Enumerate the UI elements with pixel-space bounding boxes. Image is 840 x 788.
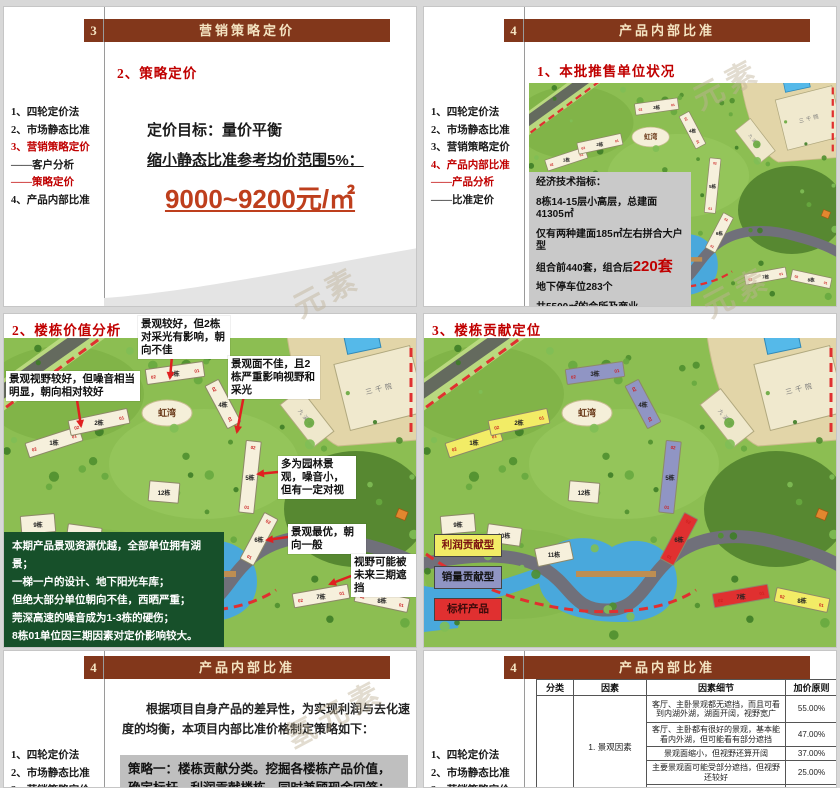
map-legend-item: 标杆产品 [434,598,502,621]
table-header-cell: 分类 [537,680,574,696]
svg-text:虹湾: 虹湾 [158,407,176,418]
svg-text:4栋: 4栋 [218,401,227,409]
summary-line: 莞深高速的噪音成为1-3栋的硬伤； [12,609,216,627]
map-callout-note: 景观最优，朝向一般 [288,524,366,554]
svg-text:01: 01 [671,103,675,108]
agenda-nav-item: ——策略定价 [11,174,103,192]
agenda-nav-list: 1、四轮定价法2、市场静态比准3、营销策略定价 [11,747,103,788]
slide-thumbnail-marketing-strategy-pricing[interactable]: 3 营销策略定价 1、四轮定价法2、市场静态比准3、营销策略定价——客户分析——… [3,6,417,307]
svg-text:8栋: 8栋 [797,597,806,605]
agenda-nav-item: 3、营销策略定价 [11,139,103,157]
svg-text:1栋: 1栋 [563,156,570,163]
svg-text:12栋: 12栋 [158,489,171,497]
agenda-nav-item: 1、四轮定价法 [11,747,103,765]
summary-line: 本期产品景观资源优越，全部单位拥有湖景； [12,537,216,573]
summary-green-box: 本期产品景观资源优越，全部单位拥有湖景；一梯一户的设计、地下阳光车库；但绝大部分… [4,532,224,648]
svg-text:2栋: 2栋 [94,419,103,427]
highlight-unit-count: 220套 [633,258,673,275]
agenda-nav-item: 1、四轮定价法 [11,104,103,122]
map-callout-note: 景观视野较好，但噪音相当明显，朝向相对较好 [6,371,140,401]
map-slide-title: 3、楼栋贡献定位 [432,319,541,339]
table-header-cell: 因素细节 [647,680,786,696]
infobox-line: 仅有两种建面185㎡左右拼合大户型 [536,229,684,254]
map-slide-title: 2、楼栋价值分析 [12,319,121,339]
agenda-nav-item: 1、四轮定价法 [431,104,523,122]
technical-indicators-infobox: 经济技术指标：8栋14-15层小高层，总建面41305㎡仅有两种建面185㎡左右… [529,172,691,306]
table-detail-cell: 客厅、主卧景观都无遮挡，而且可看到内湖外湖，湖面开阔，视野宽广 [647,696,786,723]
svg-text:7栋: 7栋 [316,593,325,601]
map-legend-item: 销量贡献型 [434,566,502,589]
agenda-nav-item: ——比准定价 [431,192,523,210]
svg-text:3栋: 3栋 [590,370,599,378]
svg-text:虹湾: 虹湾 [644,132,658,141]
svg-text:4栋: 4栋 [638,401,647,409]
map-callout-note: 景观面不佳，且2栋严重影响视野和采光 [228,356,320,399]
table-markup-cell: 25.00% [786,761,838,785]
table-category-cell [537,696,574,788]
agenda-nav-list: 1、四轮定价法2、市场静态比准3、营销策略定价 [431,747,523,788]
slide-header-title: 产品内部比准 [104,656,390,679]
slide-thumbnail-units-for-sale[interactable]: 4 产品内部比准 1、四轮定价法2、市场静态比准3、营销策略定价4、产品内部比准… [423,6,837,307]
svg-text:7栋: 7栋 [762,273,769,280]
svg-text:5栋: 5栋 [665,474,674,482]
svg-text:02: 02 [638,107,642,112]
svg-text:6栋: 6栋 [674,536,683,544]
slide-header-bar: 3 营销策略定价 [84,19,390,42]
slide-header-bar: 4 产品内部比准 [504,19,810,42]
table-markup-cell: 47.00% [786,723,838,747]
agenda-nav-item: 4、产品内部比准 [11,192,103,210]
agenda-nav-item: ——客户分析 [11,157,103,175]
svg-text:11栋: 11栋 [548,551,560,559]
pricing-factor-table: 分类因素因素细节加价原则1. 景观因素客厅、主卧景观都无遮挡，而且可看到内湖外湖… [536,679,837,788]
table-detail-cell: 视野较好，但湖景为远景 [647,785,786,788]
agenda-nav-list: 1、四轮定价法2、市场静态比准3、营销策略定价4、产品内部比准——产品分析——比… [431,104,523,209]
infobox-line: 地下停车位283个 [536,282,684,295]
table-factor-cell: 1. 景观因素 [574,696,647,788]
table-detail-cell: 景观面缩小，但视野还算开阔 [647,747,786,761]
svg-text:1栋: 1栋 [49,439,58,447]
svg-text:01: 01 [708,207,712,211]
table-markup-cell: 55.00% [786,696,838,723]
table-markup-cell: 18.00% [786,785,838,788]
agenda-nav-list: 1、四轮定价法2、市场静态比准3、营销策略定价——客户分析——策略定价4、产品内… [11,104,103,209]
svg-text:12栋: 12栋 [578,489,591,497]
agenda-nav-item: 2、市场静态比准 [431,122,523,140]
slide-header-bar: 4 产品内部比准 [84,656,390,679]
svg-text:8栋: 8栋 [377,597,386,605]
map-callout-note: 视野可能被未来三期遮挡 [351,554,417,597]
svg-text:6栋: 6栋 [716,230,723,237]
table-row: 1. 景观因素客厅、主卧景观都无遮挡，而且可看到内湖外湖，湖面开阔，视野宽广55… [537,696,838,723]
slide-section-number: 4 [504,656,524,679]
pricing-range-line: 缩小静态比准参考均价范围5%： [147,149,364,170]
slide-header-title: 产品内部比准 [524,19,810,42]
agenda-nav-item: 4、产品内部比准 [431,157,523,175]
pricing-goal-line: 定价目标：量价平衡 [147,119,282,140]
map-callout-note: 景观较好，但2栋对采光有影响，朝向不佳 [138,316,230,359]
agenda-nav-item: 3、营销策略定价 [431,782,523,788]
infobox-line: 经济技术指标： [536,177,684,190]
svg-text:6栋: 6栋 [254,536,263,544]
svg-text:5栋: 5栋 [709,183,716,190]
map-callout-note: 多为园林景观，噪音小，但有一定对视 [278,456,356,499]
slide-thumbnail-internal-comparison-strategy[interactable]: 4 产品内部比准 1、四轮定价法2、市场静态比准3、营销策略定价 根据项目自身产… [3,650,417,788]
agenda-nav-item: ——产品分析 [431,174,523,192]
table-detail-cell: 客厅、主卧都有很好的景观，基本能看内外湖，但可能看有部分遮挡 [647,723,786,747]
map-legend-item: 利润贡献型 [434,534,502,557]
strategy-intro-paragraph: 根据项目自身产品的差异性，为实现利润与去化速度的均衡，本项目内部比准价格制定策略… [122,699,410,739]
slide-header-bar: 4 产品内部比准 [504,656,810,679]
svg-text:2栋: 2栋 [514,419,523,427]
svg-text:5栋: 5栋 [245,474,254,482]
slide-section-number: 4 [504,19,524,42]
strategy-one-box: 策略一：楼栋贡献分类。挖掘各楼栋产品价值，确定标杆、利润贡献楼栋，同时兼顾现金回… [120,755,408,788]
svg-text:9栋: 9栋 [33,521,42,529]
slide-thumbnail-building-value-analysis[interactable]: 2、楼栋价值分析 三千院九溪亭虹湾02011栋02012栋02013栋02014… [3,313,417,648]
summary-line: 一梯一户的设计、地下阳光车库； [12,573,216,591]
slide-section-number: 4 [84,656,104,679]
slide-section-number: 3 [84,19,104,42]
slide-thumbnail-building-contribution-positioning[interactable]: 3、楼栋贡献定位 三千院九溪亭虹湾02011栋02012栋02013栋02014… [423,313,837,648]
table-markup-cell: 37.00% [786,747,838,761]
agenda-nav-item: 1、四轮定价法 [431,747,523,765]
agenda-nav-item: 2、市场静态比准 [11,765,103,783]
svg-text:3栋: 3栋 [653,104,660,111]
summary-line: 但绝大部分单位朝向不佳，西晒严重； [12,591,216,609]
svg-text:4栋: 4栋 [689,127,696,134]
ppt-template-preview-grid: 3 营销策略定价 1、四轮定价法2、市场静态比准3、营销策略定价——客户分析——… [0,0,840,788]
table-header-cell: 因素 [574,680,647,696]
table-detail-cell: 主要景观面可能受部分遮挡，但视野还较好 [647,761,786,785]
slide-thumbnail-comparison-factor-table[interactable]: 4 产品内部比准 1、四轮定价法2、市场静态比准3、营销策略定价 分类因素因素细… [423,650,837,788]
slide-header-title: 营销策略定价 [104,19,390,42]
agenda-nav-item: 2、市场静态比准 [11,122,103,140]
svg-text:1栋: 1栋 [469,439,478,447]
svg-text:7栋: 7栋 [736,593,745,601]
decorative-swoosh [4,246,417,306]
agenda-nav-item: 3、营销策略定价 [11,782,103,788]
summary-line: 8栋01单位因三期因素对定价影响较大。 [12,627,216,645]
infobox-line: 共5500㎡的会所及商业 [536,302,684,308]
svg-text:2栋: 2栋 [596,141,603,148]
table-header-cell: 加价原则 [786,680,838,696]
svg-text:虹湾: 虹湾 [578,407,596,418]
price-range-value: 9000~9200元/㎡ [114,179,406,216]
section-title: 1、本批推售单位状况 [537,60,675,80]
svg-text:8栋: 8栋 [808,276,815,283]
section-title: 2、策略定价 [117,62,197,82]
infobox-line: 8栋14-15层小高层，总建面41305㎡ [536,197,684,222]
slide-divider-line [524,7,525,306]
infobox-line: 组合前440套，组合后220套 [536,261,684,276]
agenda-nav-item: 3、营销策略定价 [431,139,523,157]
agenda-nav-item: 2、市场静态比准 [431,765,523,783]
svg-text:02: 02 [713,161,717,165]
slide-header-title: 产品内部比准 [524,656,810,679]
svg-text:9栋: 9栋 [453,521,462,529]
